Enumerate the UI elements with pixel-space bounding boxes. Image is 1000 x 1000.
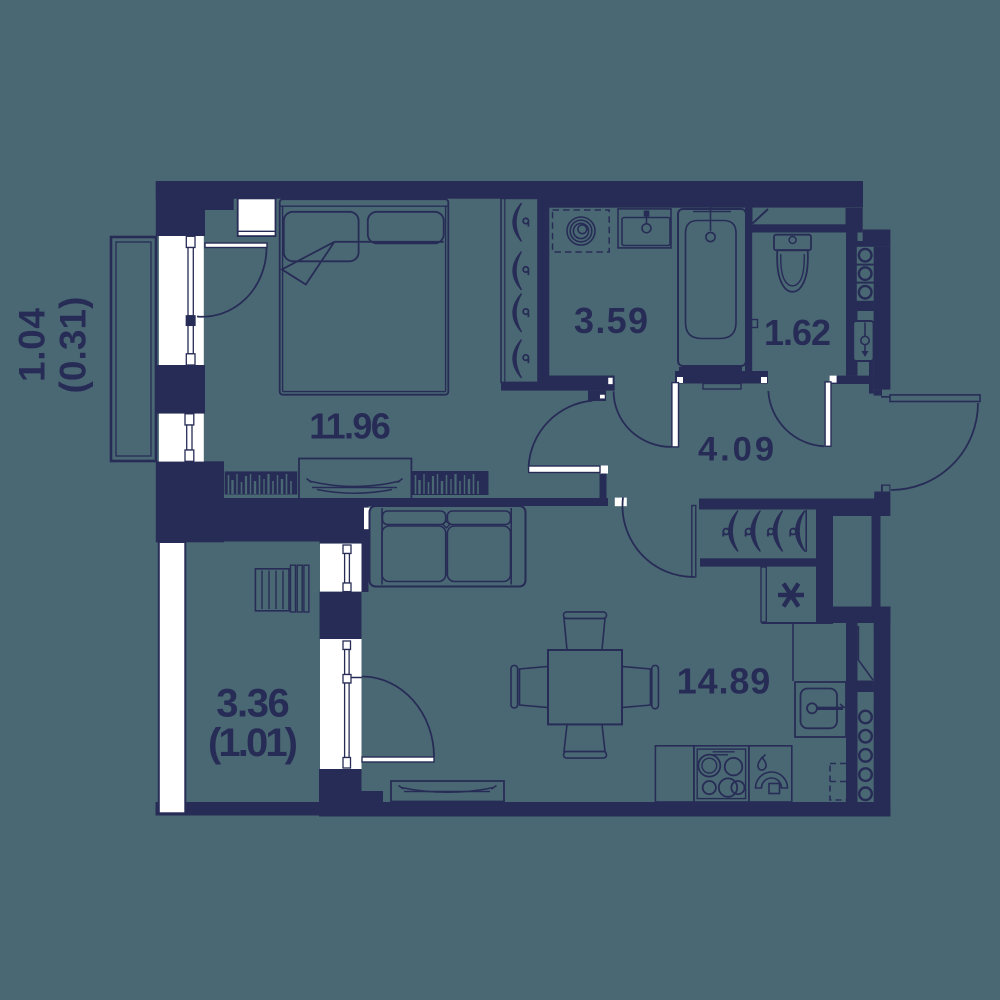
svg-text:3.59: 3.59	[574, 300, 648, 341]
svg-text:3.36: 3.36	[216, 682, 290, 726]
svg-text:(0.31): (0.31)	[53, 297, 94, 394]
svg-text:11.96: 11.96	[309, 406, 391, 447]
svg-text:1.04: 1.04	[12, 308, 53, 382]
svg-text:14.89: 14.89	[677, 661, 771, 702]
svg-text:4.09: 4.09	[698, 431, 774, 469]
svg-text:(1.01): (1.01)	[208, 721, 298, 765]
svg-text:1.62: 1.62	[764, 312, 831, 353]
